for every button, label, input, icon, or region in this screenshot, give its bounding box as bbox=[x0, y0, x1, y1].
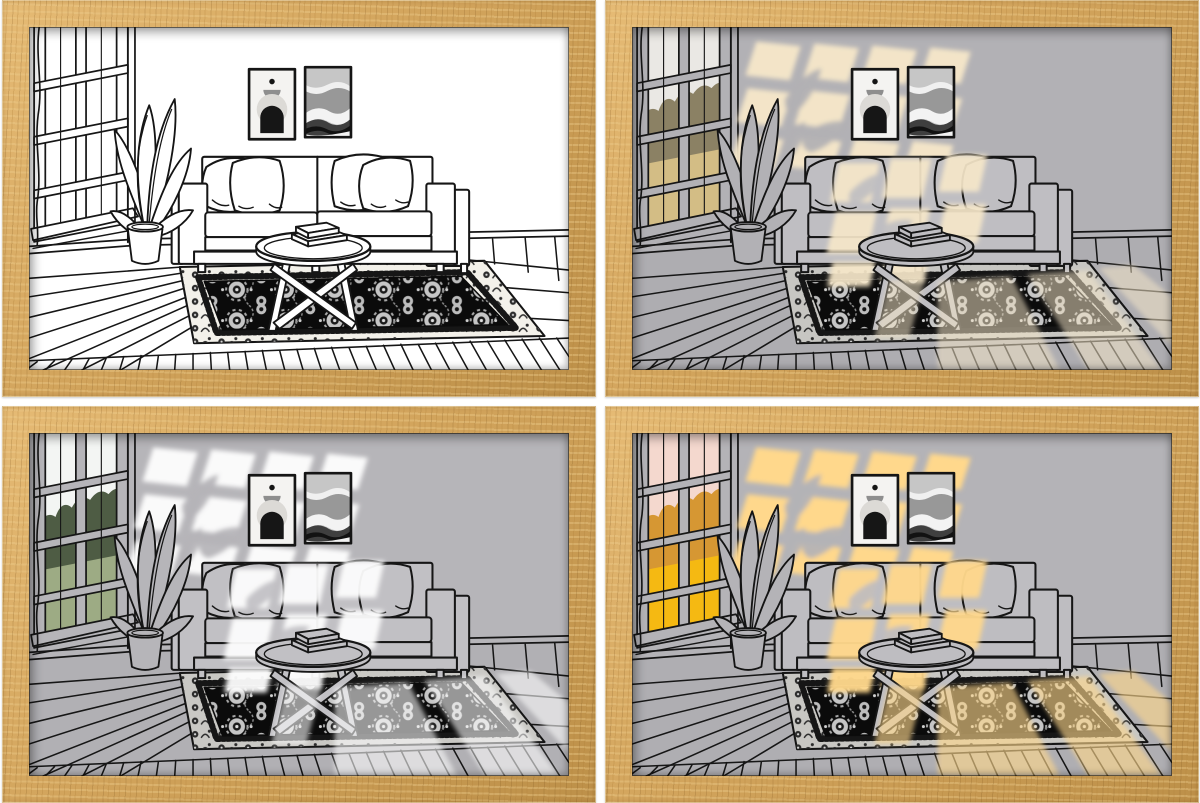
print-warm-daylight bbox=[632, 27, 1172, 370]
framed-print-golden-hour bbox=[605, 406, 1199, 803]
living-room-scene bbox=[632, 27, 1172, 370]
print-line-art bbox=[29, 27, 569, 370]
print-golden-hour bbox=[632, 433, 1172, 776]
framed-print-line-art bbox=[2, 0, 596, 397]
framed-print-cool-white bbox=[2, 406, 596, 803]
framed-print-warm-daylight bbox=[605, 0, 1199, 397]
print-cool-white bbox=[29, 433, 569, 776]
product-collage-grid bbox=[2, 0, 1199, 803]
living-room-scene bbox=[632, 433, 1172, 776]
living-room-scene bbox=[29, 27, 569, 370]
living-room-scene bbox=[29, 433, 569, 776]
